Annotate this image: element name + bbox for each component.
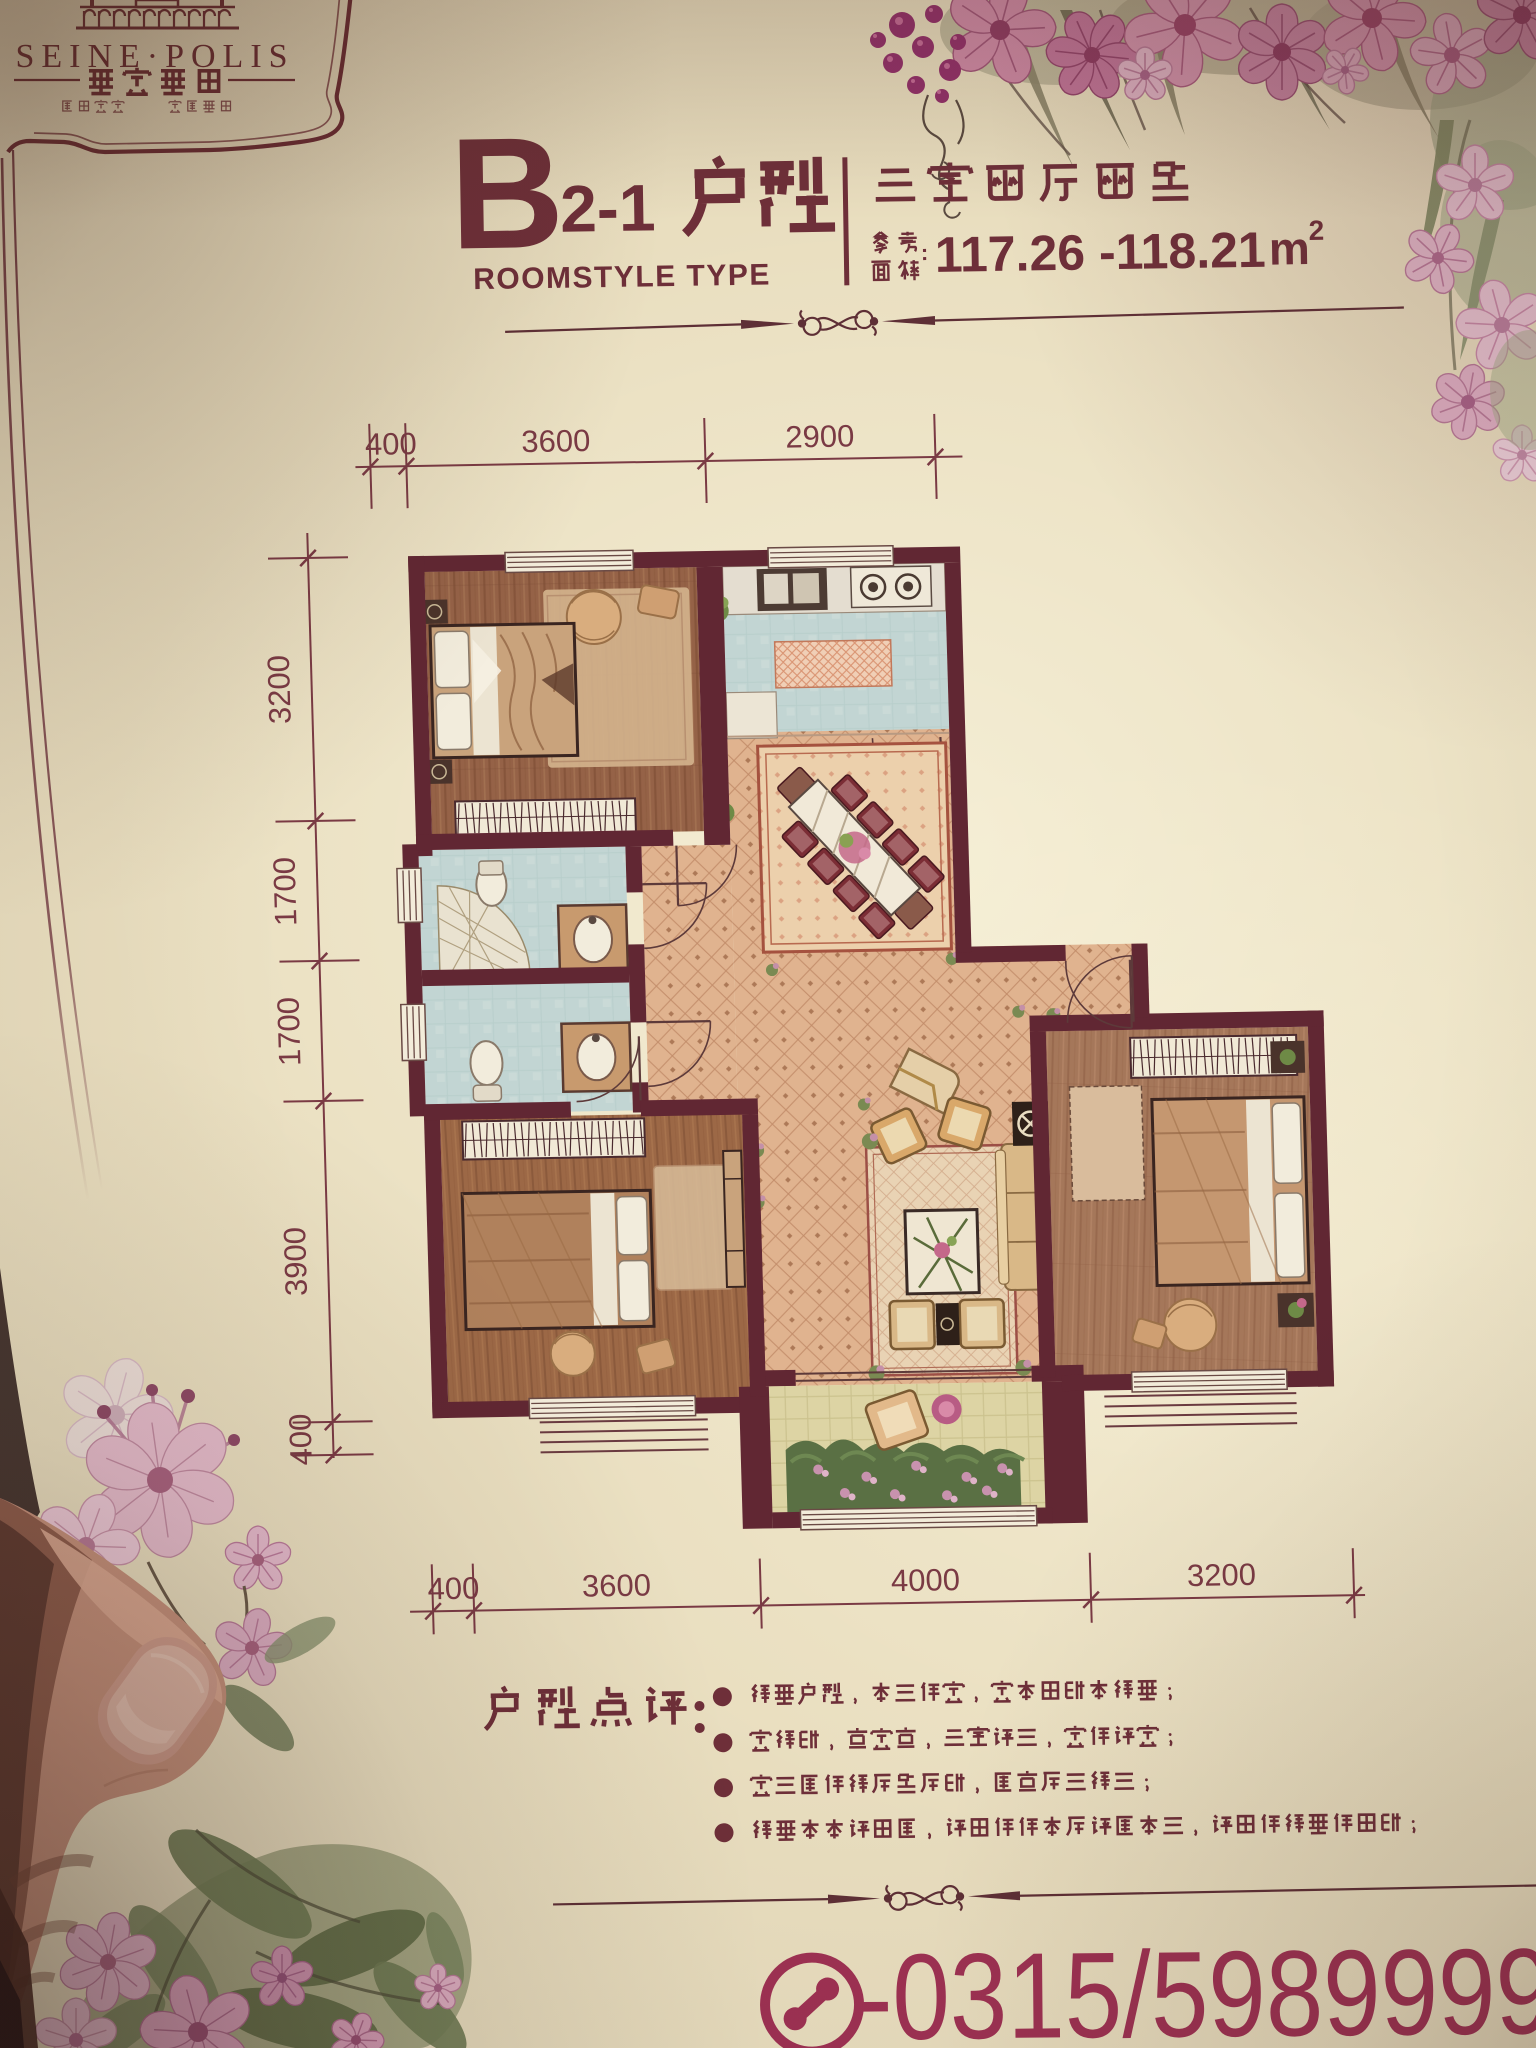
svg-text:2-1: 2-1 — [560, 170, 657, 245]
svg-text:117.26 -118.21: 117.26 -118.21 — [934, 222, 1266, 283]
svg-text:4000: 4000 — [890, 1562, 960, 1598]
svg-text::: : — [921, 240, 929, 265]
svg-text:400: 400 — [364, 426, 417, 462]
svg-text:3600: 3600 — [581, 1567, 651, 1603]
svg-text:B: B — [448, 105, 565, 283]
svg-text:2: 2 — [1308, 215, 1324, 246]
svg-text:SEINE·POLIS: SEINE·POLIS — [15, 38, 294, 75]
svg-text:1700: 1700 — [271, 997, 308, 1067]
svg-text:3900: 3900 — [277, 1227, 314, 1297]
svg-text:3200: 3200 — [1186, 1557, 1256, 1593]
svg-text:-0315/5989999: -0315/5989999 — [857, 1923, 1536, 2048]
svg-text:1700: 1700 — [267, 857, 304, 927]
svg-text:m: m — [1268, 222, 1310, 275]
svg-text:400: 400 — [427, 1570, 480, 1606]
svg-text:2900: 2900 — [785, 418, 855, 454]
svg-text:400: 400 — [282, 1413, 318, 1465]
svg-text:3600: 3600 — [521, 423, 591, 459]
svg-text:ROOMSTYLE TYPE: ROOMSTYLE TYPE — [473, 258, 771, 296]
svg-text:3200: 3200 — [261, 655, 298, 725]
